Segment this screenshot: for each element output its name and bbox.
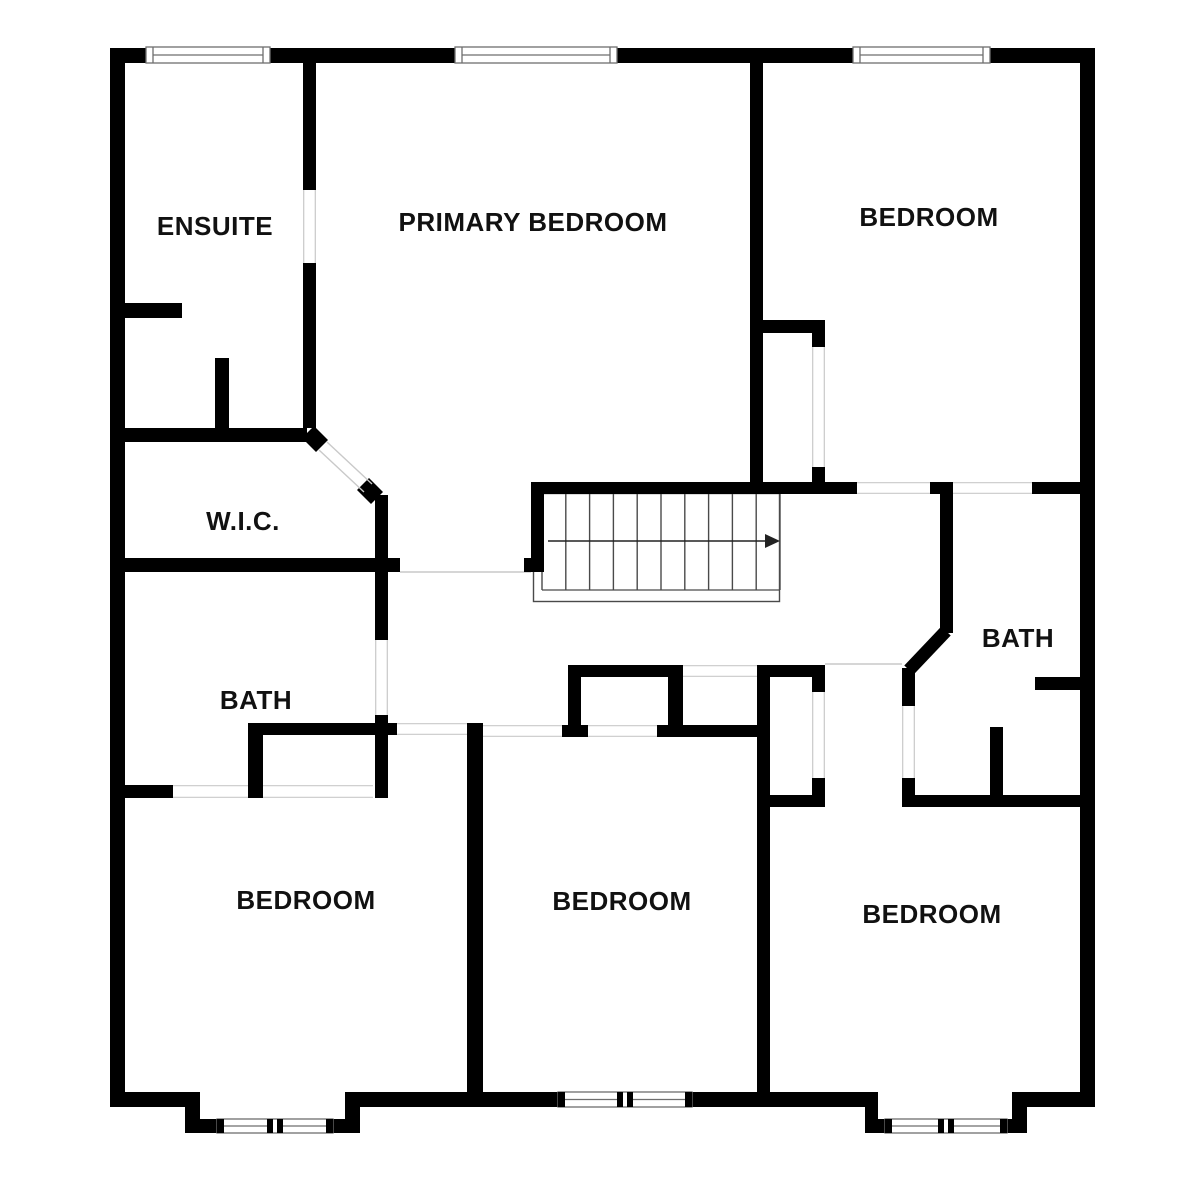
wall	[125, 428, 307, 442]
window-end-post	[217, 1119, 224, 1133]
window-mullion	[267, 1119, 273, 1133]
room-label-bath-right: BATH	[982, 623, 1054, 653]
window-end-post	[885, 1119, 892, 1133]
room-label-bedroom-s: BEDROOM	[552, 886, 691, 916]
wall	[185, 1119, 218, 1133]
wall	[568, 665, 683, 677]
window-end-post	[685, 1092, 692, 1107]
wall	[110, 48, 125, 1107]
wall	[375, 572, 388, 640]
wall	[1032, 482, 1082, 494]
door-opening	[683, 665, 757, 677]
door-opening	[263, 785, 373, 798]
window-mullion	[938, 1119, 944, 1133]
wall	[125, 558, 400, 572]
room-label-ensuite: ENSUITE	[157, 211, 273, 241]
door-opening	[173, 785, 248, 798]
diagonal-wall	[308, 432, 322, 446]
floor-plan: ENSUITEPRIMARY BEDROOMBEDROOMW.I.C.BATHB…	[0, 0, 1200, 1178]
wall	[332, 1119, 360, 1133]
window-mullion	[948, 1119, 954, 1133]
room-label-wic: W.I.C.	[206, 506, 280, 536]
room-label-primary-bedroom: PRIMARY BEDROOM	[399, 207, 668, 237]
window-mullion	[617, 1092, 623, 1107]
window-mullion	[277, 1119, 283, 1133]
door-opening	[375, 640, 388, 715]
wall	[865, 1119, 886, 1133]
wall	[215, 358, 229, 428]
wall	[902, 795, 992, 807]
wall	[568, 665, 581, 733]
wall	[524, 558, 531, 572]
door-opening	[902, 706, 915, 778]
wall	[531, 482, 544, 572]
wall	[1035, 677, 1082, 690]
wall	[125, 785, 173, 798]
wall	[668, 665, 683, 733]
room-label-bedroom-ne: BEDROOM	[859, 202, 998, 232]
floor-plan-canvas: ENSUITEPRIMARY BEDROOMBEDROOMW.I.C.BATHB…	[0, 0, 1200, 1178]
wall	[248, 723, 263, 798]
wall	[125, 303, 182, 318]
window-end-post	[1000, 1119, 1007, 1133]
wall	[467, 723, 483, 1092]
room-label-bedroom-se: BEDROOM	[862, 899, 1001, 929]
room-label-bath-left: BATH	[220, 685, 292, 715]
wall	[531, 482, 857, 494]
wall	[1003, 795, 1082, 807]
wall	[762, 320, 825, 333]
door-opening	[303, 190, 316, 263]
plan-background	[0, 0, 1200, 1178]
door-opening	[588, 725, 657, 737]
wall	[1006, 1119, 1027, 1133]
wall	[812, 677, 825, 692]
wall	[1080, 48, 1095, 1107]
wall	[757, 665, 825, 677]
door-opening	[857, 482, 930, 494]
wall	[750, 63, 763, 482]
wall	[990, 727, 1003, 807]
wall	[757, 665, 770, 1092]
door-opening	[812, 692, 825, 778]
door-opening	[483, 725, 562, 737]
door-opening	[953, 482, 1032, 494]
wall	[930, 482, 953, 494]
wall	[303, 63, 316, 190]
wall	[812, 467, 825, 482]
door-opening	[812, 347, 825, 467]
wall	[812, 333, 825, 347]
wall	[770, 795, 825, 807]
window-end-post	[326, 1119, 333, 1133]
window-end-post	[558, 1092, 565, 1107]
door-opening	[397, 723, 467, 735]
wall	[303, 263, 316, 428]
room-label-bedroom-sw: BEDROOM	[236, 885, 375, 915]
diagonal-wall	[363, 484, 377, 498]
wall	[248, 723, 397, 735]
window-mullion	[627, 1092, 633, 1107]
wall	[940, 482, 953, 633]
